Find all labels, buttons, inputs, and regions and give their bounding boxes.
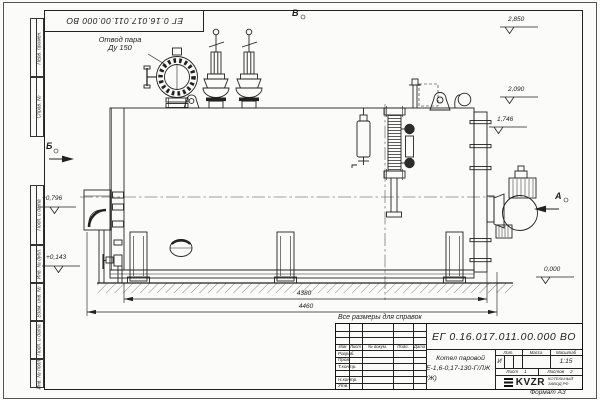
drawing-sheet: ЕГ 0.16.017.011.00.000 ВО Перв. примен. … — [0, 0, 600, 400]
margin-box-label: Справ. № — [37, 96, 43, 119]
margin-box-label: Инв. № подл. — [37, 358, 43, 389]
tb-designation: ЕГ 0.16.017.011.00.000 ВО — [426, 324, 582, 349]
view-label-b: Б — [46, 142, 52, 151]
margin-box-sprav: Справ. № — [30, 77, 44, 137]
elevation-2850: 2,850 — [508, 17, 524, 24]
kvzr-logo-text: KVZR — [516, 377, 545, 388]
tb-scale-value: 1:15 — [550, 355, 582, 368]
margin-box-label: Инв. № дубл. — [37, 249, 43, 280]
tb-sheet-cell: Лист 1 — [495, 368, 538, 375]
tb-sheet-label: Лист — [506, 369, 518, 374]
elevation-1746: 1,746 — [497, 117, 513, 124]
dimension-4460: 4460 — [290, 304, 322, 311]
tb-col-podp: Подп. — [393, 344, 413, 351]
margin-box-label: Взам. инв. № — [37, 287, 43, 318]
tb-product-name-line2: Е-1,6-0,17-130-Г/ЛЖ (Ж) — [426, 364, 495, 384]
tb-lit-value: И — [495, 355, 504, 368]
title-block: Изм Лист № докум. Подп. Дата Разраб. Про… — [335, 323, 583, 390]
reference-note: Все размеры для справок — [338, 314, 422, 321]
tb-col-data: Дата — [413, 344, 426, 351]
tb-sheets-label: Листов — [547, 369, 564, 374]
top-designation-stamp: ЕГ 0.16.017.011.00.000 ВО — [44, 10, 204, 32]
margin-box-label: Подп. и дата — [37, 324, 43, 355]
top-designation-text: ЕГ 0.16.017.011.00.000 ВО — [66, 16, 183, 26]
margin-box-inv-dubl: Инв. № дубл. — [30, 245, 44, 283]
tb-sheet-value: 1 — [524, 369, 527, 374]
tb-col-doc: № докум. — [362, 344, 393, 351]
tb-row-tkontr: Т.контр. — [336, 363, 364, 370]
elevation-0000: 0,000 — [544, 267, 560, 274]
kvzr-logo-icon — [504, 378, 513, 387]
tb-row-utv: Утв. — [336, 383, 364, 390]
margin-box-podp-data-2: Подп. и дата — [30, 321, 44, 359]
elevation-2090: 2,090 — [508, 87, 524, 94]
margin-box-inv-podl: Инв. № подл. — [30, 359, 44, 388]
kvzr-sub2: ЗАВОД РФ — [548, 382, 573, 387]
view-label-v: В — [292, 9, 299, 18]
tb-product-name: Котел паровой Е-1,6-0,17-130-Г/ЛЖ (Ж) — [426, 349, 495, 389]
tb-sheets-cell: Листов 2 — [538, 368, 582, 375]
tb-product-name-line1: Котел паровой — [436, 354, 485, 364]
elevation-0796: +0,796 — [42, 196, 62, 203]
tb-sheets-value: 2 — [570, 369, 573, 374]
margin-box-perv-primen: Перв. примен. — [30, 18, 44, 77]
steam-outlet-callout: Отвод пара Ду 150 — [88, 36, 152, 52]
margin-box-label: Подп. и дата — [37, 199, 43, 230]
dimension-4380: 4380 — [288, 291, 320, 298]
tb-mass-header: Масса — [522, 349, 550, 355]
view-label-a: А — [555, 192, 562, 201]
margin-box-podp-data-1: Подп. и дата — [30, 185, 44, 245]
margin-box-vzam-inv: Взам. инв. № — [30, 283, 44, 321]
kvzr-logo-subtext: КОТЕЛЬНЫЙ ЗАВОД РФ — [548, 377, 573, 386]
elevation-0143: +0,143 — [46, 255, 66, 262]
callout-line2: Ду 150 — [88, 44, 152, 52]
margin-box-label: Перв. примен. — [37, 31, 43, 64]
company-logo: KVZR КОТЕЛЬНЫЙ ЗАВОД РФ — [495, 375, 582, 389]
format-label: Формат А3 — [530, 390, 566, 397]
